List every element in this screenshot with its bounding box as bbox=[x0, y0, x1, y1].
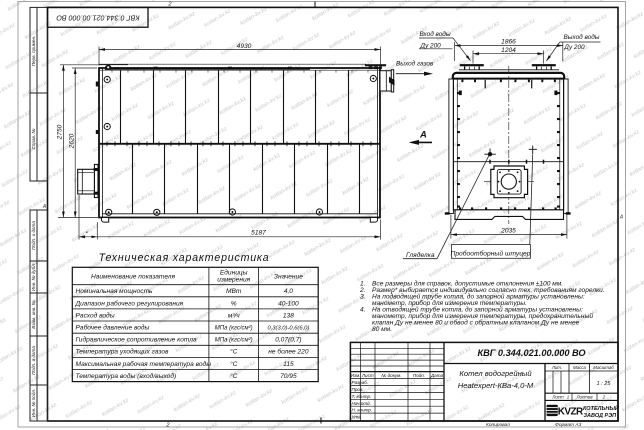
svg-text:Диапазон рабочего регулировани: Диапазон рабочего регулирования bbox=[75, 299, 184, 307]
svg-text:80 мм.: 80 мм. bbox=[372, 326, 392, 333]
svg-text:40-100: 40-100 bbox=[278, 300, 299, 307]
svg-text:Единицы: Единицы bbox=[220, 269, 248, 277]
svg-text:4.: 4. bbox=[360, 306, 366, 313]
svg-text:138: 138 bbox=[283, 312, 294, 319]
svg-text:Нач.отд.: Нач.отд. bbox=[352, 401, 371, 406]
svg-text:МВт: МВт bbox=[226, 288, 242, 295]
svg-text:3.: 3. bbox=[360, 293, 366, 300]
svg-text:КВГ 0.344.021.00.000 ВО: КВГ 0.344.021.00.000 ВО bbox=[56, 14, 140, 23]
svg-text:измерения: измерения bbox=[217, 277, 250, 284]
svg-text:Изм.: Изм. bbox=[351, 373, 361, 378]
svg-text:Вход воды: Вход воды bbox=[420, 30, 451, 38]
svg-text:Лит.: Лит. bbox=[551, 365, 562, 370]
svg-text:Подп. и дата: Подп. и дата bbox=[31, 221, 36, 250]
svg-text:KVZR: KVZR bbox=[558, 406, 584, 417]
svg-text:А: А bbox=[419, 130, 427, 141]
svg-text:Максимальная рабочая температу: Максимальная рабочая температура воды bbox=[76, 360, 212, 368]
svg-text:2035: 2035 bbox=[500, 228, 516, 235]
svg-text:Масса: Масса bbox=[573, 365, 587, 370]
svg-text:Значение: Значение bbox=[274, 274, 303, 281]
svg-text:Котел водогрейный: Котел водогрейный bbox=[459, 369, 532, 378]
svg-text:Ду 200: Ду 200 bbox=[563, 44, 585, 51]
svg-text:Номинальная мощность: Номинальная мощность bbox=[76, 288, 154, 295]
svg-text:1204: 1204 bbox=[501, 47, 516, 54]
svg-text:Подп.: Подп. bbox=[413, 373, 425, 378]
svg-text:№ докум.: № докум. bbox=[381, 373, 401, 378]
svg-text:70/95: 70/95 bbox=[280, 373, 297, 380]
svg-text:Инв. № дубл.: Инв. № дубл. bbox=[31, 263, 36, 291]
svg-text:Масштаб: Масштаб bbox=[593, 365, 614, 370]
svg-text:Выход газов: Выход газов bbox=[396, 59, 434, 67]
svg-text:Справ. №: Справ. № bbox=[31, 129, 36, 150]
svg-text:115: 115 bbox=[283, 361, 294, 368]
svg-text:Наименование показателя: Наименование показателя bbox=[91, 274, 176, 281]
svg-text:КОТЕЛЬНЫЙ: КОТЕЛЬНЫЙ bbox=[583, 404, 620, 412]
svg-text:А: А bbox=[619, 214, 624, 220]
svg-text:Температура уходящих газов: Температура уходящих газов bbox=[76, 348, 169, 356]
svg-text:2: 2 bbox=[602, 395, 606, 400]
svg-text:Техническая характеристика: Техническая характеристика bbox=[99, 252, 270, 264]
svg-text:А: А bbox=[42, 204, 47, 210]
svg-text:Разраб.: Разраб. bbox=[352, 380, 369, 385]
svg-text:Гидравлическое сопротивление к: Гидравлическое сопротивление котла bbox=[76, 336, 197, 344]
svg-text:Утв.: Утв. bbox=[352, 415, 362, 420]
svg-text:Выход воды: Выход воды bbox=[564, 33, 600, 41]
svg-text:Перв. примен.: Перв. примен. bbox=[31, 36, 36, 67]
svg-text:°С: °С bbox=[230, 360, 238, 368]
svg-text:°С: °С bbox=[230, 348, 238, 356]
svg-text:Формат А3: Формат А3 bbox=[555, 422, 582, 428]
svg-text:Гляделка: Гляделка bbox=[406, 251, 435, 259]
svg-text:Взам. инв. №: Взам. инв. № bbox=[31, 300, 36, 328]
svg-text:0,07(0,7): 0,07(0,7) bbox=[275, 337, 301, 344]
svg-text:%: % bbox=[231, 300, 237, 307]
svg-text:2620: 2620 bbox=[69, 133, 76, 149]
svg-text:Листов: Листов bbox=[576, 395, 594, 400]
svg-text:не более 220: не более 220 bbox=[268, 348, 309, 356]
svg-text:КВГ 0.344.021.00.000 ВО: КВГ 0.344.021.00.000 ВО bbox=[477, 348, 585, 358]
svg-text:м³/ч: м³/ч bbox=[228, 312, 241, 319]
svg-text:Н. контр.: Н. контр. bbox=[352, 408, 373, 413]
svg-text:0,3(3,0)-0,6(6,0): 0,3(3,0)-0,6(6,0) bbox=[267, 326, 309, 332]
svg-text:Пробоотборный штуцер: Пробоотборный штуцер bbox=[450, 250, 530, 258]
svg-text:Heatexpert-КВа-4,0-М: Heatexpert-КВа-4,0-М bbox=[458, 381, 534, 390]
svg-text:клапан Ду не менее 80 и обвод: клапан Ду не менее 80 и обвод с обратным… bbox=[372, 318, 580, 326]
svg-text:Рабочее давление воды: Рабочее давление воды bbox=[76, 324, 150, 332]
svg-text:5187: 5187 bbox=[251, 230, 266, 237]
svg-text:Температура воды (вход/выход): Температура воды (вход/выход) bbox=[76, 372, 177, 380]
svg-text:МПа (кгс/см²): МПа (кгс/см²) bbox=[215, 338, 253, 344]
svg-text:Копировал: Копировал bbox=[486, 422, 510, 428]
svg-text:Дата: Дата bbox=[430, 373, 444, 378]
svg-text:ЗАВОД РЭП: ЗАВОД РЭП bbox=[584, 413, 618, 419]
svg-text:МПа (кгс/см²): МПа (кгс/см²) bbox=[215, 326, 253, 332]
svg-text:Лист: Лист bbox=[551, 395, 564, 400]
svg-text:Лист: Лист bbox=[361, 373, 374, 378]
svg-text:Расход воды: Расход воды bbox=[76, 311, 115, 319]
svg-text:1 : 25: 1 : 25 bbox=[597, 381, 612, 387]
svg-text:4930: 4930 bbox=[237, 43, 252, 50]
svg-text:2750: 2750 bbox=[57, 124, 64, 140]
svg-text:°С: °С bbox=[230, 372, 238, 380]
svg-text:Ду 200: Ду 200 bbox=[420, 42, 442, 49]
svg-text:Подп. и дата: Подп. и дата bbox=[31, 346, 36, 375]
svg-text:4,0: 4,0 bbox=[284, 288, 293, 295]
svg-text:1866: 1866 bbox=[501, 39, 516, 46]
svg-text:Т. контр.: Т. контр. bbox=[352, 394, 372, 399]
svg-text:Инв. № подл.: Инв. № подл. bbox=[31, 389, 36, 418]
svg-text:Пров.: Пров. bbox=[352, 387, 364, 392]
